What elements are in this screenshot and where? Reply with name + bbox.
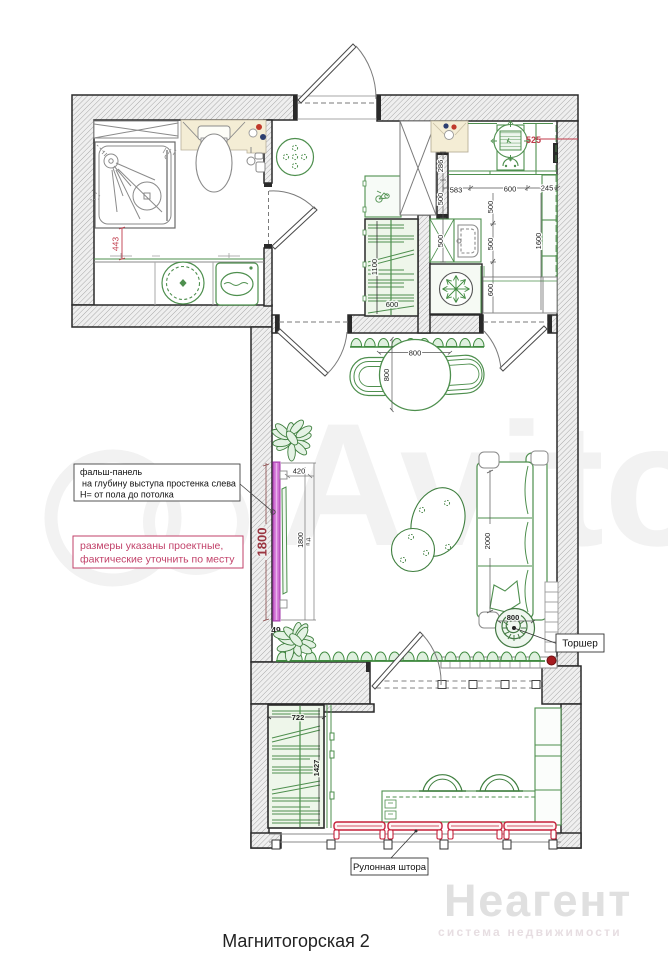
svg-text:п.д.: п.д. [306, 536, 312, 546]
svg-text:фальш-панель: фальш-панель [80, 467, 142, 477]
svg-text:800: 800 [409, 349, 422, 358]
svg-text:500: 500 [436, 193, 445, 206]
svg-text:286: 286 [436, 160, 445, 173]
svg-text:1100: 1100 [370, 259, 379, 275]
svg-text:Магнитогорская 2: Магнитогорская 2 [222, 931, 370, 951]
svg-text:1800: 1800 [255, 528, 270, 557]
svg-text:1427: 1427 [312, 760, 321, 777]
svg-text:420: 420 [293, 467, 306, 476]
svg-text:Неагент: Неагент [444, 875, 632, 926]
svg-text:система недвижимости: система недвижимости [438, 925, 622, 939]
svg-text:800: 800 [382, 369, 391, 382]
svg-text:на глубину выступа простенка с: на глубину выступа простенка слева [82, 479, 236, 489]
svg-text:фактические уточнить по месту: фактические уточнить по месту [80, 554, 235, 566]
svg-text:500: 500 [436, 235, 445, 248]
svg-text:245: 245 [541, 184, 554, 193]
svg-text:2000: 2000 [483, 533, 492, 550]
svg-text:600: 600 [386, 300, 399, 309]
svg-text:443: 443 [111, 237, 121, 251]
svg-text:Рулонная штора: Рулонная штора [353, 862, 427, 873]
svg-text:600: 600 [486, 284, 495, 297]
svg-text:500: 500 [486, 238, 495, 251]
svg-text:600: 600 [504, 185, 517, 194]
svg-text:Торшер: Торшер [562, 639, 598, 650]
svg-text:1600: 1600 [534, 233, 543, 250]
svg-text:Avito: Avito [280, 388, 668, 583]
svg-text:размеры указаны проектные,: размеры указаны проектные, [80, 540, 223, 552]
svg-text:Н= от пола до потолка: Н= от пола до потолка [80, 490, 174, 500]
svg-text:500: 500 [486, 201, 495, 214]
svg-text:525: 525 [526, 135, 541, 145]
svg-text:722: 722 [292, 713, 305, 722]
svg-text:1800: 1800 [298, 532, 305, 548]
svg-text:800: 800 [507, 613, 520, 622]
svg-text:583: 583 [450, 186, 463, 195]
